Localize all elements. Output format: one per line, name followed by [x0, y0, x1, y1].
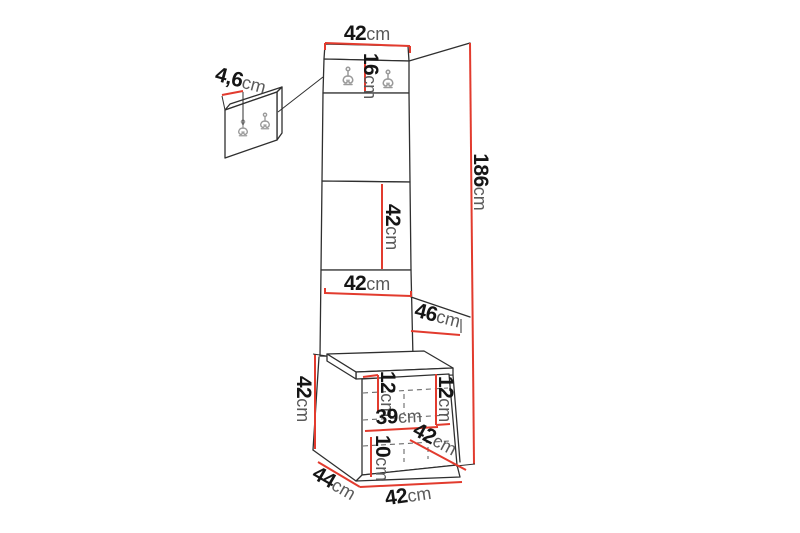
dim-label-total-height: 186cm — [469, 153, 492, 211]
dim-line-total-height — [470, 43, 474, 464]
furniture-dimension-diagram: 42cm 16cm 4,6cm 186cm 42cm 42cm 46cm 42c… — [0, 0, 800, 533]
dim-label-bench-inner-right: 12cm — [434, 376, 457, 422]
dim-label-bench-inner-bottom: 10cm — [371, 435, 394, 481]
dim-label-bench-height: 42cm — [292, 376, 315, 422]
wall-panel-side-edge — [277, 87, 282, 140]
dim-label-upper-depth: 46cm — [412, 299, 463, 333]
dim-label-wall-panel: 4,6cm — [213, 63, 269, 99]
dim-line-wall-panel — [222, 91, 243, 95]
perspective-line-top — [409, 43, 470, 61]
dim-label-bench-depth: 44cm — [308, 462, 360, 505]
dim-label-hook-panel-height: 16cm — [359, 53, 382, 99]
dim-line-upper-depth — [411, 331, 460, 335]
dim-tick — [436, 424, 450, 425]
dim-label-panel-width: 42cm — [344, 272, 390, 295]
wall-panel-pointer-line — [278, 77, 323, 112]
dim-label-top-width: 42cm — [344, 22, 390, 45]
dim-label-mid-panel-height: 42cm — [381, 204, 404, 250]
unit-panel-upper — [322, 93, 410, 182]
dim-extension-line — [222, 96, 225, 110]
diagram-svg: 42cm 16cm 4,6cm 186cm 42cm 42cm 46cm 42c… — [0, 0, 800, 533]
